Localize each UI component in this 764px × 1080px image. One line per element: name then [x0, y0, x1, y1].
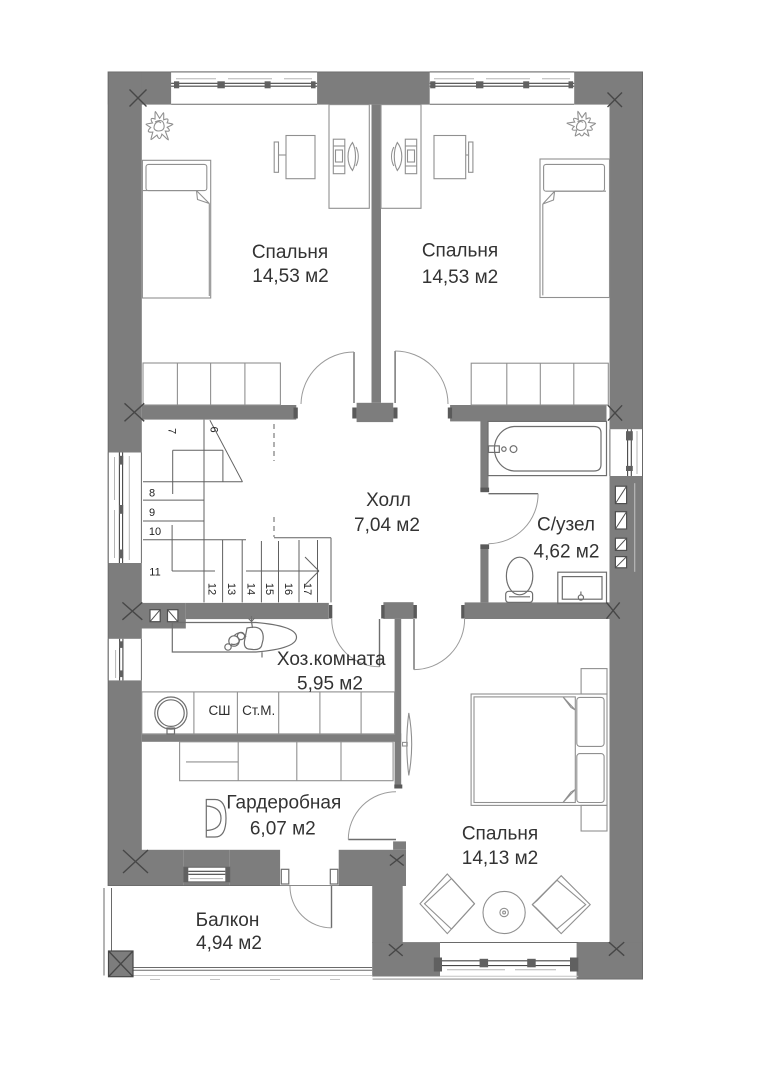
svg-text:СШ: СШ [208, 703, 230, 718]
svg-text:14: 14 [245, 583, 257, 595]
svg-text:7,04 м2: 7,04 м2 [354, 515, 420, 536]
svg-text:17: 17 [301, 583, 313, 595]
svg-text:Балкон: Балкон [196, 910, 260, 931]
svg-text:Спальня: Спальня [422, 241, 498, 262]
svg-text:8: 8 [149, 487, 155, 499]
svg-text:16: 16 [282, 583, 294, 595]
svg-text:14,13 м2: 14,13 м2 [462, 848, 538, 869]
svg-text:Ст.М.: Ст.М. [242, 703, 275, 718]
svg-text:11: 11 [149, 566, 160, 578]
svg-text:12: 12 [206, 583, 218, 595]
svg-text:9: 9 [149, 507, 155, 519]
svg-text:Гардеробная: Гардеробная [226, 792, 341, 813]
svg-text:6: 6 [208, 426, 220, 432]
svg-text:6,07 м2: 6,07 м2 [250, 818, 316, 839]
svg-text:15: 15 [263, 583, 275, 595]
svg-text:Холл: Холл [366, 490, 411, 511]
svg-text:Хоз.комната: Хоз.комната [277, 649, 386, 670]
svg-text:4,94 м2: 4,94 м2 [196, 933, 262, 954]
svg-text:Спальня: Спальня [462, 824, 538, 845]
svg-text:14,53 м2: 14,53 м2 [422, 267, 498, 288]
svg-text:С/узел: С/узел [537, 515, 595, 536]
svg-text:14,53 м2: 14,53 м2 [252, 266, 328, 287]
svg-text:10: 10 [149, 526, 161, 538]
svg-text:Спальня: Спальня [252, 242, 328, 263]
svg-text:4,62 м2: 4,62 м2 [534, 542, 600, 563]
svg-text:13: 13 [225, 583, 237, 595]
svg-text:5,95 м2: 5,95 м2 [297, 674, 363, 695]
svg-text:7: 7 [166, 428, 178, 434]
